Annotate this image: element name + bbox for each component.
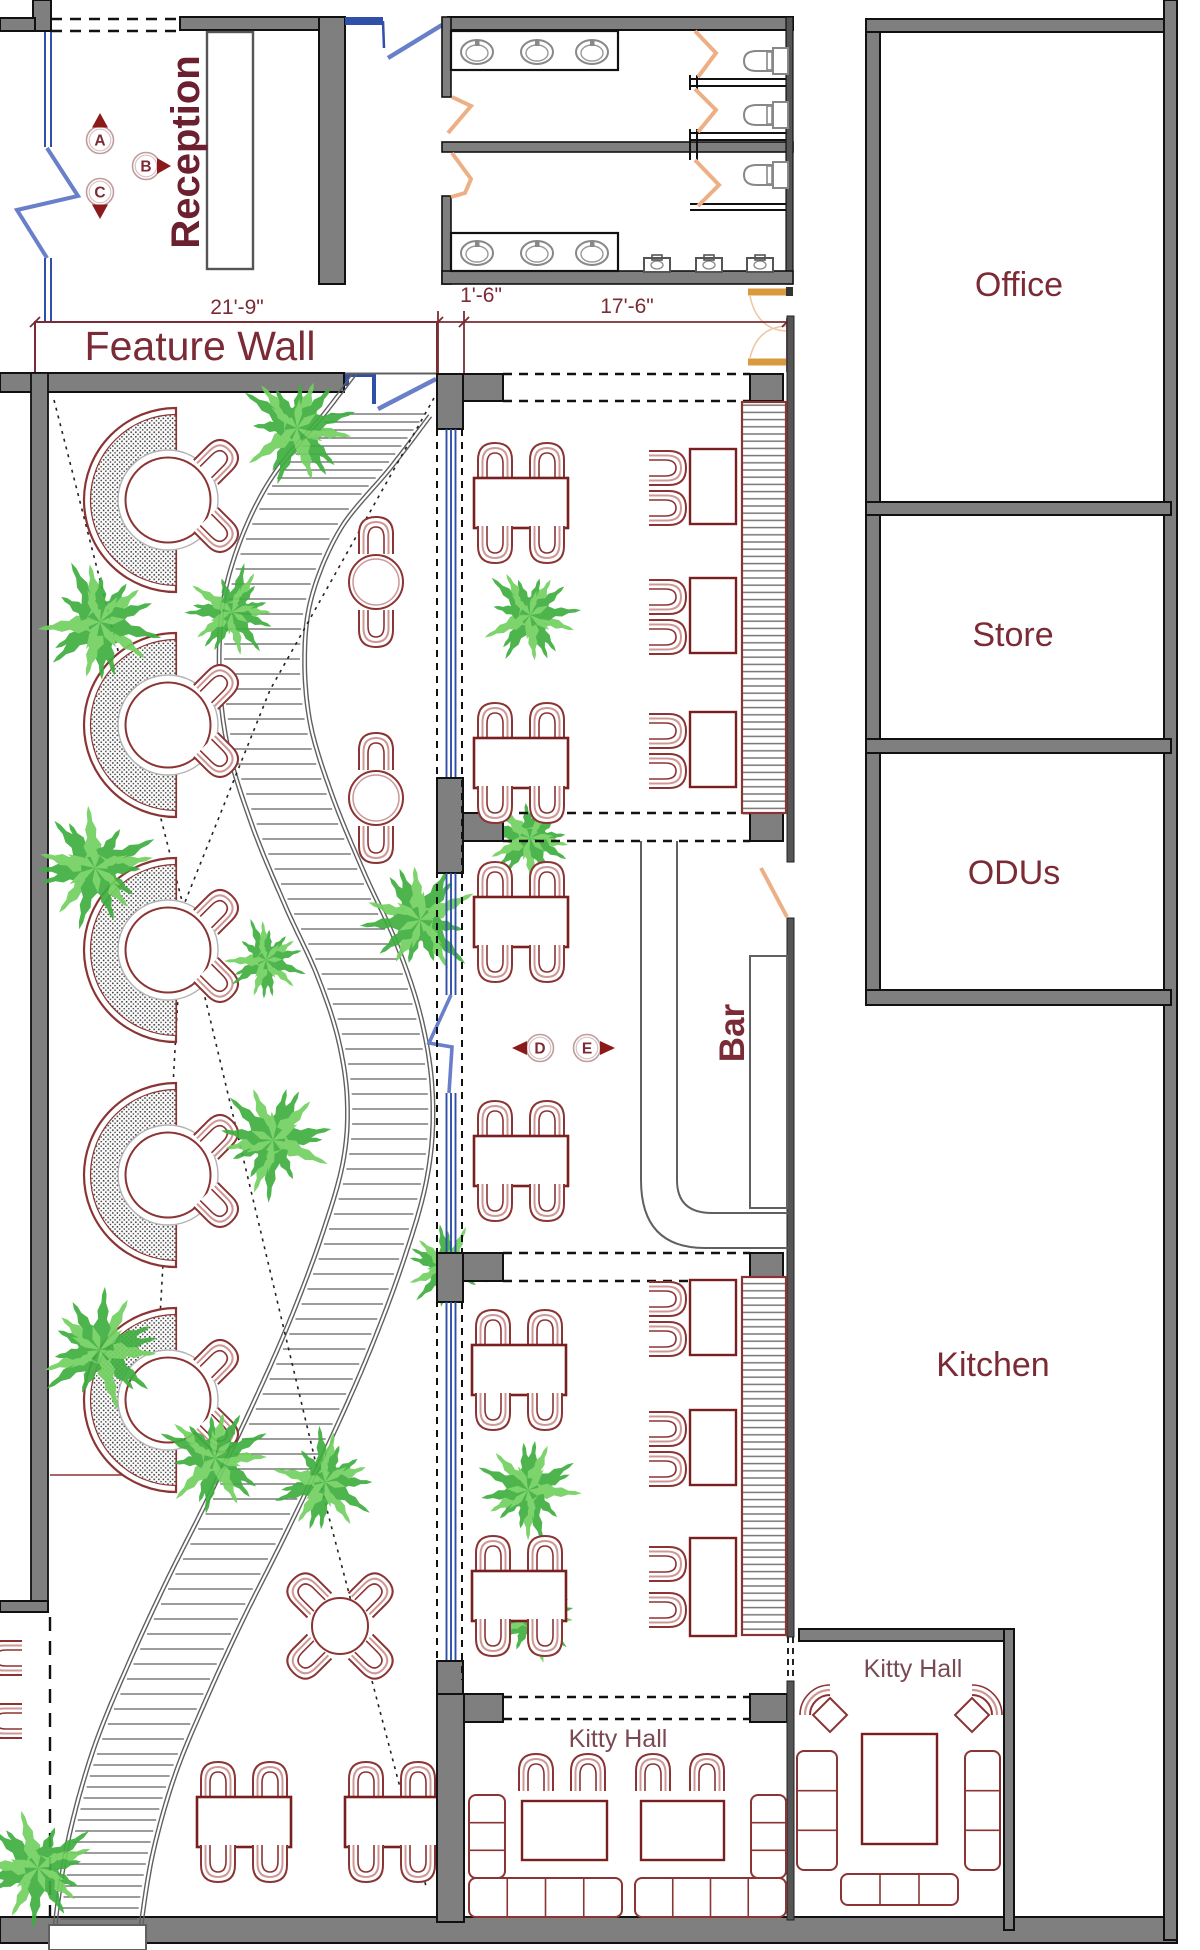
svg-text:A: A xyxy=(94,133,105,150)
svg-text:Reception: Reception xyxy=(164,55,208,248)
svg-text:Bar: Bar xyxy=(713,1003,752,1062)
svg-text:17'-6": 17'-6" xyxy=(600,295,654,318)
svg-text:D: D xyxy=(534,1041,545,1058)
svg-text:Store: Store xyxy=(972,616,1053,654)
svg-text:E: E xyxy=(582,1041,592,1058)
svg-text:Feature Wall: Feature Wall xyxy=(85,323,316,369)
svg-text:B: B xyxy=(140,159,151,176)
svg-text:21'-9": 21'-9" xyxy=(210,296,264,319)
svg-text:Kitty Hall: Kitty Hall xyxy=(569,1725,668,1753)
svg-text:1'-6": 1'-6" xyxy=(460,284,502,307)
svg-text:Kitchen: Kitchen xyxy=(936,1346,1049,1384)
svg-text:Kitty Hall: Kitty Hall xyxy=(864,1655,963,1683)
svg-text:ODUs: ODUs xyxy=(968,854,1061,892)
svg-text:Office: Office xyxy=(975,266,1063,304)
svg-text:C: C xyxy=(94,185,105,202)
